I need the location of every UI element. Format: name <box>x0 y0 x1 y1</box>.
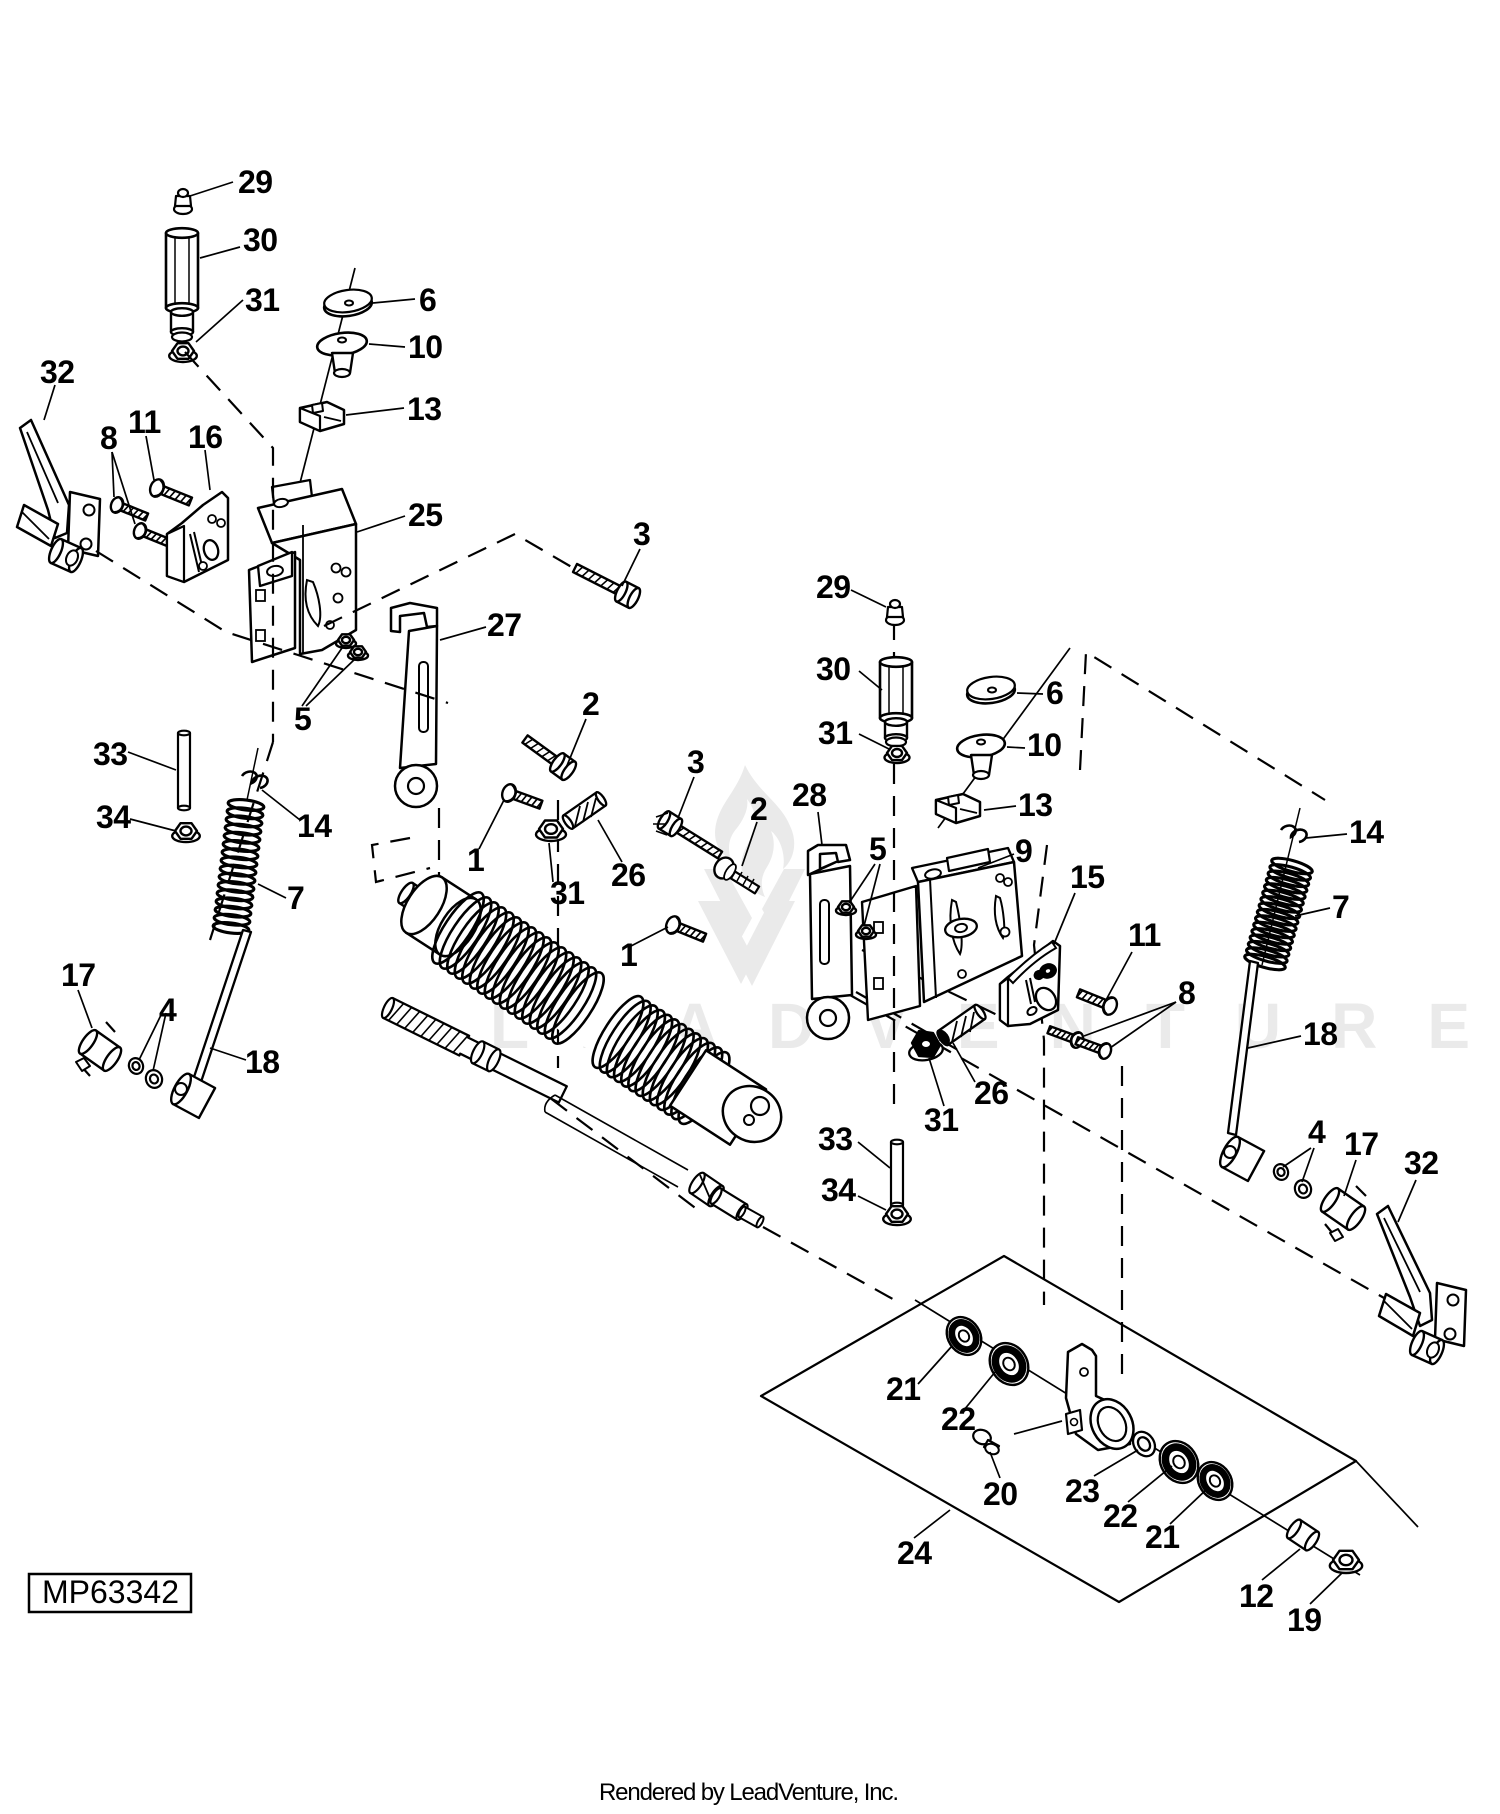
svg-text:20: 20 <box>983 1476 1018 1512</box>
svg-text:3: 3 <box>687 744 704 780</box>
svg-text:3: 3 <box>633 516 650 552</box>
svg-text:14: 14 <box>297 808 332 844</box>
svg-text:33: 33 <box>93 736 128 772</box>
svg-text:4: 4 <box>1308 1114 1326 1150</box>
svg-text:21: 21 <box>1145 1519 1180 1555</box>
svg-text:13: 13 <box>1018 787 1053 823</box>
svg-text:18: 18 <box>245 1044 280 1080</box>
svg-text:34: 34 <box>96 799 131 835</box>
svg-text:21: 21 <box>886 1371 921 1407</box>
svg-text:28: 28 <box>792 777 827 813</box>
svg-text:11: 11 <box>128 404 161 440</box>
svg-text:29: 29 <box>238 164 273 200</box>
svg-text:7: 7 <box>287 880 304 916</box>
svg-text:5: 5 <box>869 831 886 867</box>
svg-text:13: 13 <box>407 391 442 427</box>
svg-text:2: 2 <box>750 791 767 827</box>
svg-text:23: 23 <box>1065 1473 1100 1509</box>
svg-text:5: 5 <box>294 701 311 737</box>
svg-text:25: 25 <box>408 497 443 533</box>
svg-text:26: 26 <box>974 1075 1009 1111</box>
svg-text:22: 22 <box>941 1401 976 1437</box>
svg-text:32: 32 <box>1404 1145 1439 1181</box>
svg-text:29: 29 <box>816 569 851 605</box>
svg-text:6: 6 <box>1046 675 1063 711</box>
svg-text:30: 30 <box>243 222 278 258</box>
svg-text:1: 1 <box>467 842 484 878</box>
svg-text:10: 10 <box>1027 727 1062 763</box>
svg-text:10: 10 <box>408 329 443 365</box>
svg-text:4: 4 <box>159 992 177 1028</box>
svg-text:14: 14 <box>1349 814 1384 850</box>
svg-text:9: 9 <box>1015 833 1032 869</box>
svg-text:22: 22 <box>1103 1498 1138 1534</box>
svg-text:27: 27 <box>487 607 522 643</box>
svg-text:17: 17 <box>61 957 96 993</box>
svg-text:17: 17 <box>1344 1126 1379 1162</box>
svg-text:12: 12 <box>1239 1578 1274 1614</box>
svg-text:34: 34 <box>821 1172 856 1208</box>
svg-text:8: 8 <box>1178 975 1195 1011</box>
svg-text:31: 31 <box>924 1102 959 1138</box>
svg-text:7: 7 <box>1332 889 1349 925</box>
svg-text:31: 31 <box>818 715 853 751</box>
svg-text:6: 6 <box>419 282 436 318</box>
svg-text:24: 24 <box>897 1535 932 1571</box>
svg-text:31: 31 <box>245 282 280 318</box>
svg-text:11: 11 <box>1128 917 1161 953</box>
svg-text:19: 19 <box>1287 1602 1322 1638</box>
svg-text:33: 33 <box>818 1121 853 1157</box>
svg-text:8: 8 <box>100 420 117 456</box>
svg-text:31: 31 <box>550 875 585 911</box>
svg-text:15: 15 <box>1070 859 1105 895</box>
svg-text:2: 2 <box>582 686 599 722</box>
svg-text:1: 1 <box>620 937 637 973</box>
svg-text:26: 26 <box>611 857 646 893</box>
svg-text:MP63342: MP63342 <box>42 1574 179 1610</box>
svg-text:30: 30 <box>816 651 851 687</box>
svg-text:18: 18 <box>1303 1016 1338 1052</box>
svg-text:16: 16 <box>188 419 223 455</box>
svg-text:32: 32 <box>40 354 75 390</box>
svg-text:Rendered by LeadVenture, Inc.: Rendered by LeadVenture, Inc. <box>599 1779 899 1806</box>
